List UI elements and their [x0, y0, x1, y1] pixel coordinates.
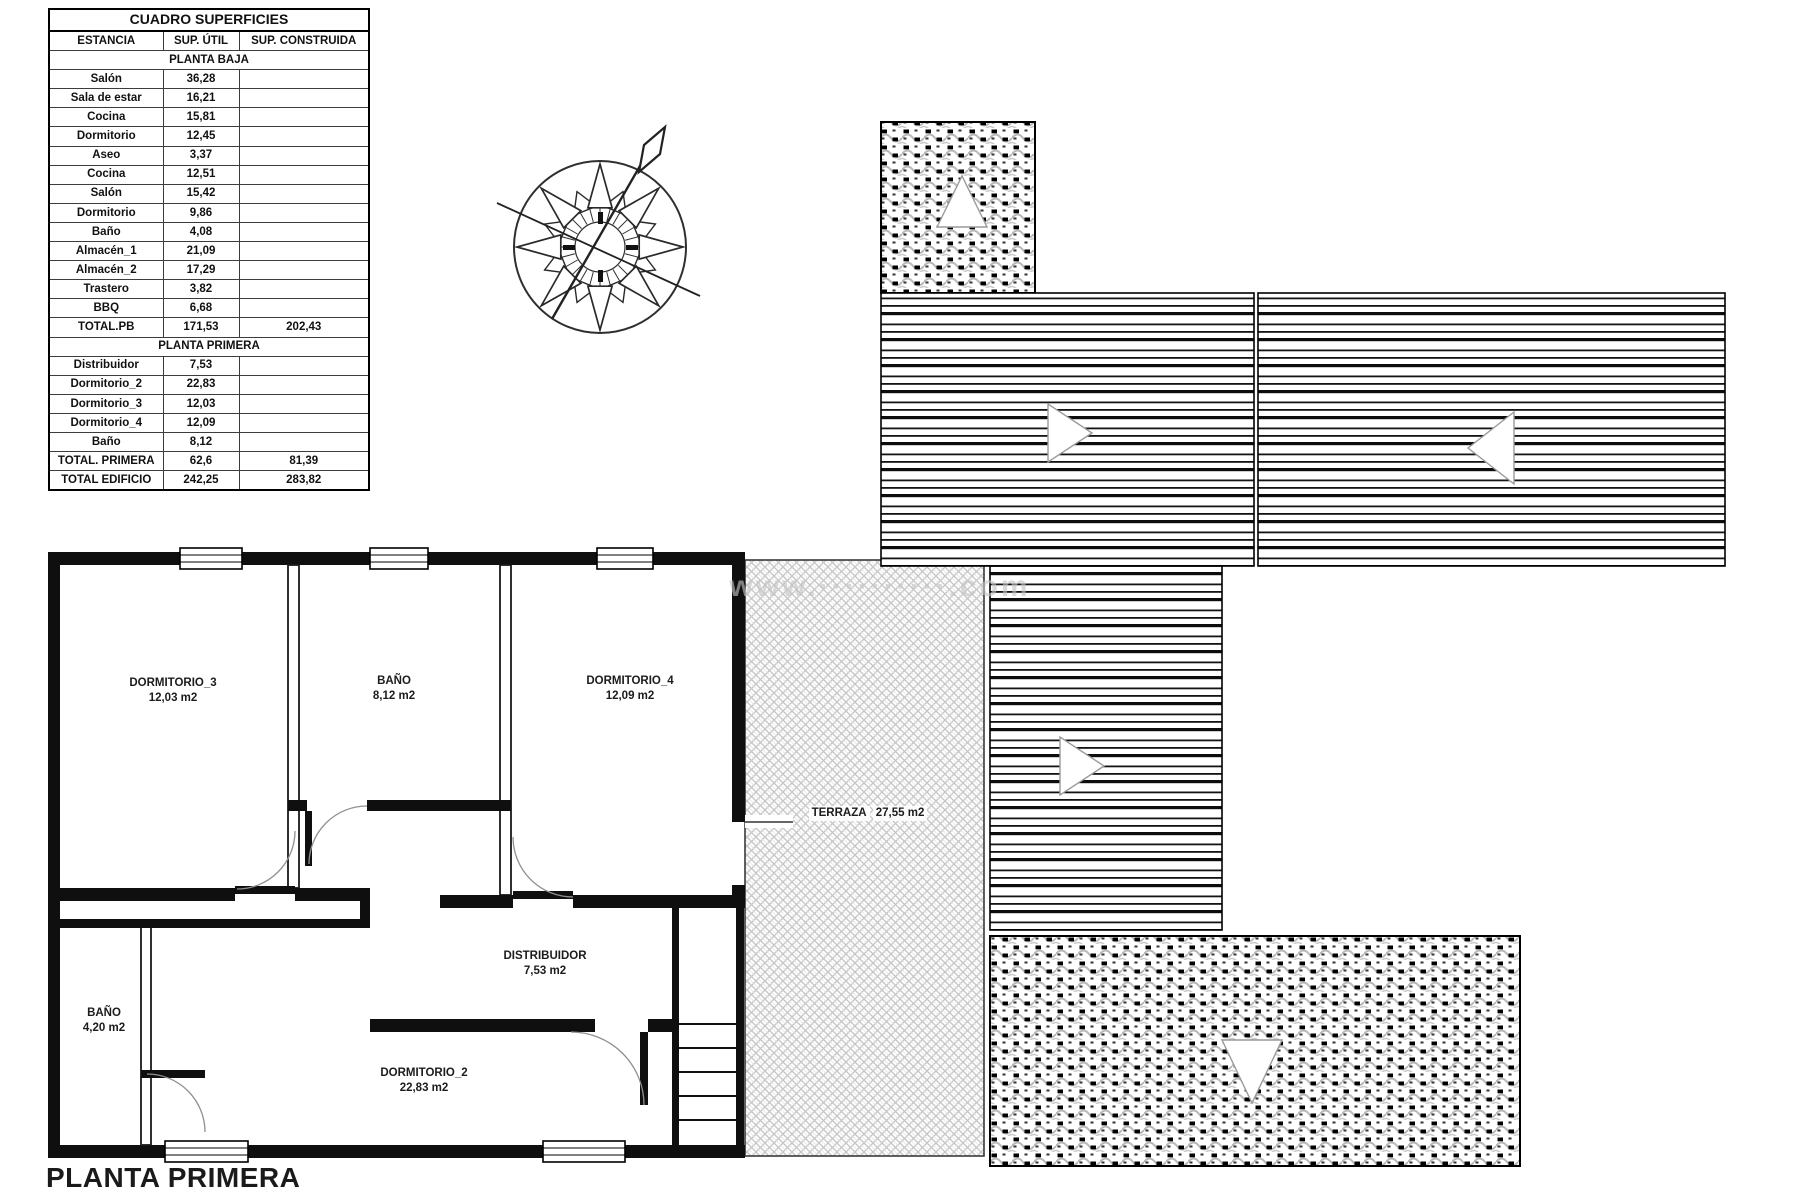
surface-table: CUADRO SUPERFICIES ESTANCIA SUP. ÚTIL SU… — [48, 8, 370, 491]
cell-sup-util: 22,83 — [163, 375, 239, 394]
roof-band-left — [881, 293, 1254, 566]
cell-sup-util: 8,12 — [163, 432, 239, 451]
table-row: Salón36,28 — [49, 70, 369, 89]
cell-room: BBQ — [49, 299, 163, 318]
table-row: Dormitorio12,45 — [49, 127, 369, 146]
stairs — [679, 1024, 736, 1120]
cell-sup-construida — [239, 70, 369, 89]
table-row: Baño4,08 — [49, 222, 369, 241]
room-name: TERRAZA — [809, 806, 870, 821]
cell-room: Baño — [49, 222, 163, 241]
room-area: 22,83 m2 — [354, 1081, 494, 1096]
table-row: Sala de estar16,21 — [49, 89, 369, 108]
cell-total-construida: 202,43 — [239, 318, 369, 337]
window — [370, 548, 428, 569]
table-total-row: TOTAL.PB171,53202,43 — [49, 318, 369, 337]
table-row: Salón15,42 — [49, 184, 369, 203]
table-row: Dormitorio9,86 — [49, 203, 369, 222]
cell-sup-util: 16,21 — [163, 89, 239, 108]
cell-sup-construida — [239, 184, 369, 203]
cell-sup-construida — [239, 356, 369, 375]
table-header-row: ESTANCIA SUP. ÚTIL SUP. CONSTRUIDA — [49, 31, 369, 51]
cell-sup-construida — [239, 299, 369, 318]
room-label-bano-small: BAÑO 4,20 m2 — [62, 1006, 146, 1036]
cell-sup-construida — [239, 222, 369, 241]
section-header: PLANTA PRIMERA — [49, 337, 369, 356]
table-row: Distribuidor7,53 — [49, 356, 369, 375]
window — [180, 548, 242, 569]
cell-room: Cocina — [49, 165, 163, 184]
cell-sup-util: 3,37 — [163, 146, 239, 165]
compass-rose-icon — [497, 127, 700, 333]
cell-total-label: TOTAL.PB — [49, 318, 163, 337]
cell-total-label: TOTAL EDIFICIO — [49, 471, 163, 491]
cell-sup-construida — [239, 280, 369, 299]
cell-sup-construida — [239, 394, 369, 413]
cell-total-construida: 283,82 — [239, 471, 369, 491]
cell-total-label: TOTAL. PRIMERA — [49, 452, 163, 471]
cell-room: Salón — [49, 184, 163, 203]
cell-room: Dormitorio — [49, 203, 163, 222]
cell-sup-construida — [239, 127, 369, 146]
cell-total-util: 242,25 — [163, 471, 239, 491]
cell-room: Salón — [49, 70, 163, 89]
table-row: Cocina15,81 — [49, 108, 369, 127]
cell-room: Distribuidor — [49, 356, 163, 375]
room-label-dormitorio-2: DORMITORIO_2 22,83 m2 — [354, 1066, 494, 1096]
cell-room: Baño — [49, 432, 163, 451]
watermark: www.··········.com — [665, 570, 1095, 604]
room-area: 7,53 m2 — [475, 964, 615, 979]
terrace-region — [745, 560, 984, 1156]
cell-sup-util: 7,53 — [163, 356, 239, 375]
cell-room: Dormitorio_4 — [49, 413, 163, 432]
cell-sup-util: 12,51 — [163, 165, 239, 184]
col-header-sup-util: SUP. ÚTIL — [163, 31, 239, 51]
cell-sup-util: 21,09 — [163, 242, 239, 261]
terrace-door — [745, 815, 793, 828]
room-name: DISTRIBUIDOR — [475, 949, 615, 964]
room-label-bano-p1: BAÑO 8,12 m2 — [334, 674, 454, 704]
table-row: Dormitorio_312,03 — [49, 394, 369, 413]
cell-sup-util: 12,45 — [163, 127, 239, 146]
room-name: BAÑO — [62, 1006, 146, 1021]
cell-total-construida: 81,39 — [239, 452, 369, 471]
cell-sup-construida — [239, 203, 369, 222]
window — [597, 548, 653, 569]
table-section-row: PLANTA BAJA — [49, 51, 369, 70]
cell-room: Trastero — [49, 280, 163, 299]
cell-room: Almacén_1 — [49, 242, 163, 261]
room-area: 12,09 m2 — [560, 689, 700, 704]
col-header-sup-construida: SUP. CONSTRUIDA — [239, 31, 369, 51]
window — [165, 1141, 248, 1162]
room-label-dormitorio-3: DORMITORIO_3 12,03 m2 — [103, 676, 243, 706]
cell-room: Sala de estar — [49, 89, 163, 108]
cell-sup-construida — [239, 108, 369, 127]
section-header: PLANTA BAJA — [49, 51, 369, 70]
room-name: DORMITORIO_2 — [354, 1066, 494, 1081]
table-row: Trastero3,82 — [49, 280, 369, 299]
room-label-dormitorio-4: DORMITORIO_4 12,09 m2 — [560, 674, 700, 704]
room-name: DORMITORIO_4 — [560, 674, 700, 689]
cell-sup-util: 15,42 — [163, 184, 239, 203]
cell-sup-util: 15,81 — [163, 108, 239, 127]
cell-room: Cocina — [49, 108, 163, 127]
table-row: Dormitorio_412,09 — [49, 413, 369, 432]
cell-sup-util: 36,28 — [163, 70, 239, 89]
roof-section-middle — [990, 566, 1222, 930]
col-header-estancia: ESTANCIA — [49, 31, 163, 51]
table-row: Cocina12,51 — [49, 165, 369, 184]
room-area: 8,12 m2 — [334, 689, 454, 704]
cell-sup-util: 3,82 — [163, 280, 239, 299]
room-name: BAÑO — [334, 674, 454, 689]
cell-sup-construida — [239, 261, 369, 280]
room-name: DORMITORIO_3 — [103, 676, 243, 691]
roof-band-right — [1258, 293, 1725, 566]
table-row: Dormitorio_222,83 — [49, 375, 369, 394]
cell-sup-construida — [239, 89, 369, 108]
cell-room: Almacén_2 — [49, 261, 163, 280]
cell-sup-util: 4,08 — [163, 222, 239, 241]
north-needle-diamond — [639, 127, 665, 172]
room-label-terraza: TERRAZA 27,55 m2 — [806, 806, 930, 821]
cell-sup-construida — [239, 165, 369, 184]
cell-sup-util: 17,29 — [163, 261, 239, 280]
cell-room: Dormitorio_3 — [49, 394, 163, 413]
cell-sup-construida — [239, 413, 369, 432]
cell-sup-construida — [239, 146, 369, 165]
cell-sup-construida — [239, 242, 369, 261]
table-section-row: PLANTA PRIMERA — [49, 337, 369, 356]
cell-sup-construida — [239, 375, 369, 394]
cell-sup-util: 12,03 — [163, 394, 239, 413]
room-area: 27,55 m2 — [873, 806, 928, 821]
room-area: 12,03 m2 — [103, 691, 243, 706]
table-row: Almacén_217,29 — [49, 261, 369, 280]
roof-section-bottom-dotted — [990, 936, 1520, 1166]
cell-room: Dormitorio — [49, 127, 163, 146]
table-total-row: TOTAL. PRIMERA62,681,39 — [49, 452, 369, 471]
table-row: Almacén_121,09 — [49, 242, 369, 261]
plan-title: PLANTA PRIMERA — [46, 1162, 300, 1194]
cell-sup-construida — [239, 432, 369, 451]
floor-plan-sheet: CUADRO SUPERFICIES ESTANCIA SUP. ÚTIL SU… — [0, 0, 1800, 1200]
room-area: 4,20 m2 — [62, 1021, 146, 1036]
table-title: CUADRO SUPERFICIES — [49, 9, 369, 31]
cell-total-util: 62,6 — [163, 452, 239, 471]
table-row: Baño8,12 — [49, 432, 369, 451]
cell-sup-util: 9,86 — [163, 203, 239, 222]
table-grand-total-row: TOTAL EDIFICIO242,25283,82 — [49, 471, 369, 491]
room-label-distribuidor: DISTRIBUIDOR 7,53 m2 — [475, 949, 615, 979]
table-title-row: CUADRO SUPERFICIES — [49, 9, 369, 31]
cell-room: Aseo — [49, 146, 163, 165]
cell-sup-util: 6,68 — [163, 299, 239, 318]
cell-total-util: 171,53 — [163, 318, 239, 337]
cell-sup-util: 12,09 — [163, 413, 239, 432]
roof-section-top-dotted — [881, 122, 1035, 293]
window — [543, 1141, 625, 1162]
cell-room: Dormitorio_2 — [49, 375, 163, 394]
table-row: BBQ6,68 — [49, 299, 369, 318]
table-row: Aseo3,37 — [49, 146, 369, 165]
